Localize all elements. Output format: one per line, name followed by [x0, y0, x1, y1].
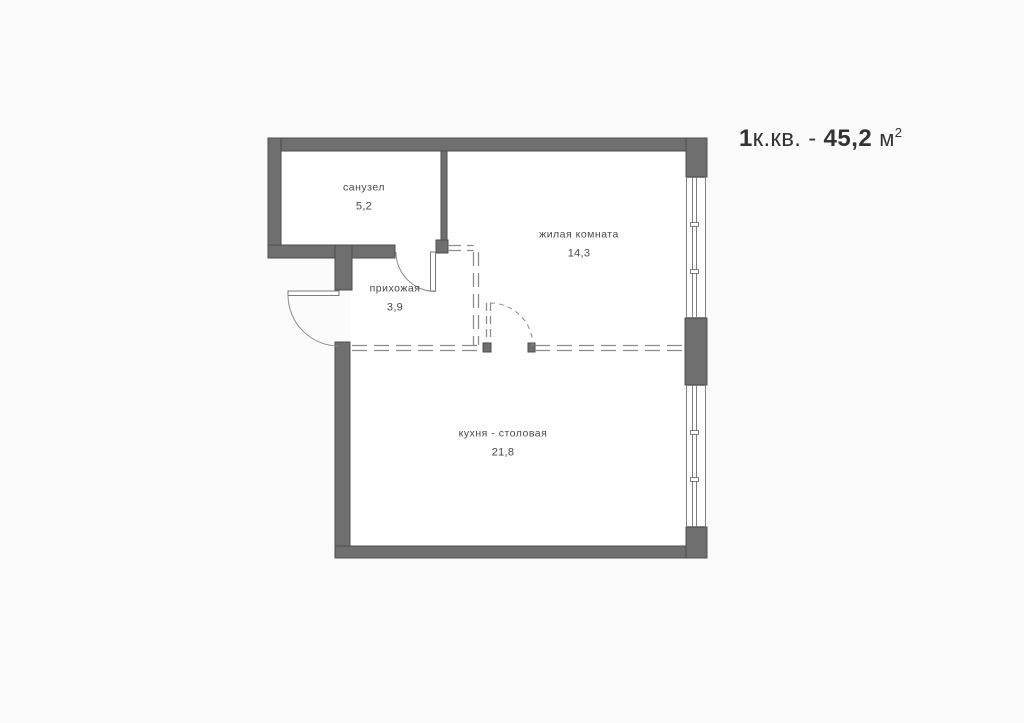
- hall-left-wall-upper: [335, 245, 352, 290]
- entry-door: [288, 291, 339, 346]
- title-rooms-count: 1: [739, 125, 753, 152]
- partition-foot-block: [436, 240, 448, 253]
- bathroom-door-leaf: [431, 252, 436, 291]
- floor-plan-page: санузел 5,2 жилая комната 14,3 прихожая …: [0, 0, 1024, 723]
- bathroom-living-partition: [441, 151, 447, 245]
- title-separator: -: [808, 125, 816, 152]
- title-rooms-suffix: к.кв.: [753, 125, 802, 152]
- right-wall-top: [686, 138, 707, 177]
- entry-door-leaf: [288, 291, 339, 296]
- floor-plan-drawing: [0, 0, 1024, 723]
- outer-left-wall: [268, 138, 281, 258]
- planned-door-jamb-right: [528, 343, 535, 352]
- window-top-right: [687, 178, 706, 318]
- entry-door-swing-arc: [288, 295, 339, 346]
- window-bottom-right: [687, 386, 706, 527]
- right-wall-bottom: [686, 527, 707, 558]
- outer-top-wall: [268, 138, 707, 151]
- title-unit: м: [879, 126, 894, 151]
- kitchen-left-wall: [335, 342, 350, 558]
- bathroom-bottom-wall: [268, 245, 395, 258]
- right-wall-pier: [685, 318, 707, 385]
- title-unit-sup: 2: [895, 125, 903, 140]
- outer-bottom-wall: [335, 546, 707, 558]
- plan-title: 1к.кв.-45,2м2: [739, 125, 902, 153]
- title-area-value: 45,2: [824, 125, 873, 152]
- planned-door-jamb-left: [483, 343, 491, 352]
